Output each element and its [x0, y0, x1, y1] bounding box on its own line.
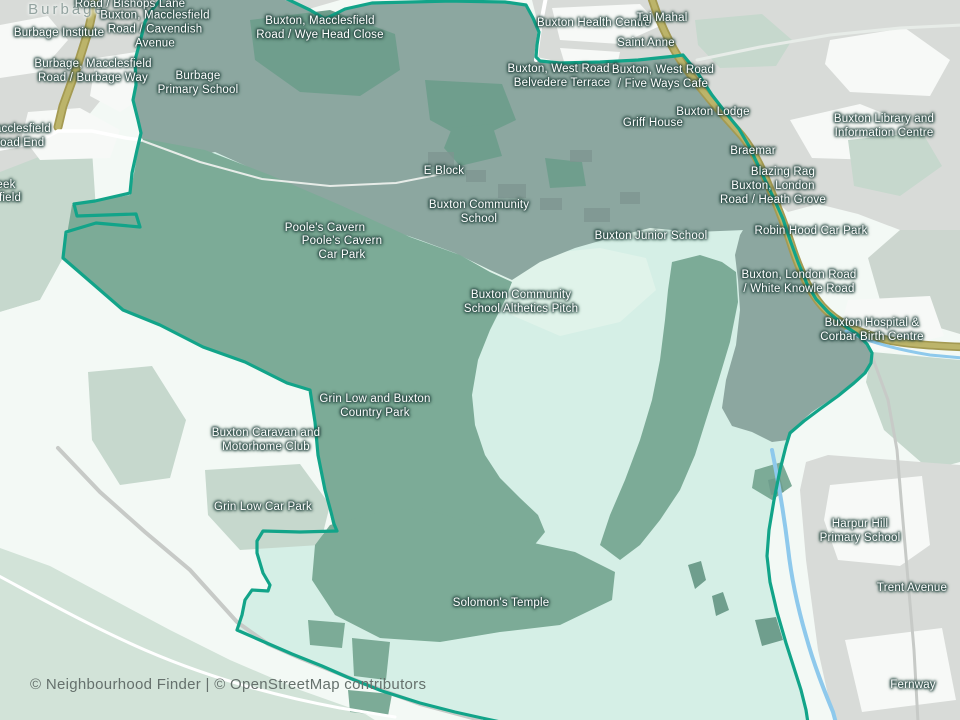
map-canvas[interactable]: BurbageRoad / Bishops LaneBuxton, Maccle… [0, 0, 960, 720]
map-tiles [0, 0, 960, 720]
attribution: © Neighbourhood Finder | © OpenStreetMap… [30, 676, 426, 693]
